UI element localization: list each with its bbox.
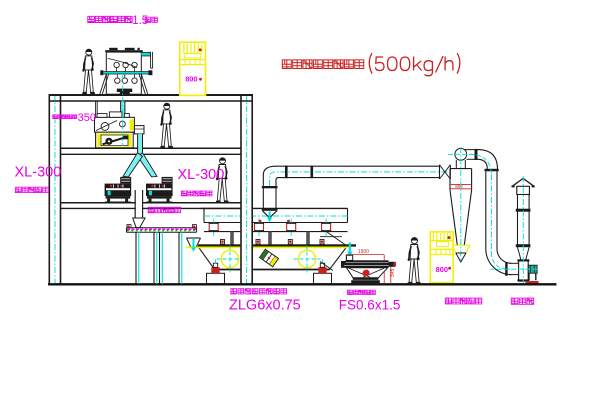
svg-text:FS0.6x1.5: FS0.6x1.5 <box>339 298 401 313</box>
svg-text:800: 800 <box>436 265 448 274</box>
svg-text:800: 800 <box>455 184 463 189</box>
svg-text:XL-300: XL-300 <box>178 167 225 183</box>
svg-text:ZLG6x0.75: ZLG6x0.75 <box>229 297 301 313</box>
svg-text:350: 350 <box>78 112 96 124</box>
svg-text:1500: 1500 <box>358 249 369 255</box>
svg-text:345: 345 <box>390 268 396 277</box>
svg-text:XL-300: XL-300 <box>15 165 62 181</box>
svg-text:800: 800 <box>185 74 197 83</box>
